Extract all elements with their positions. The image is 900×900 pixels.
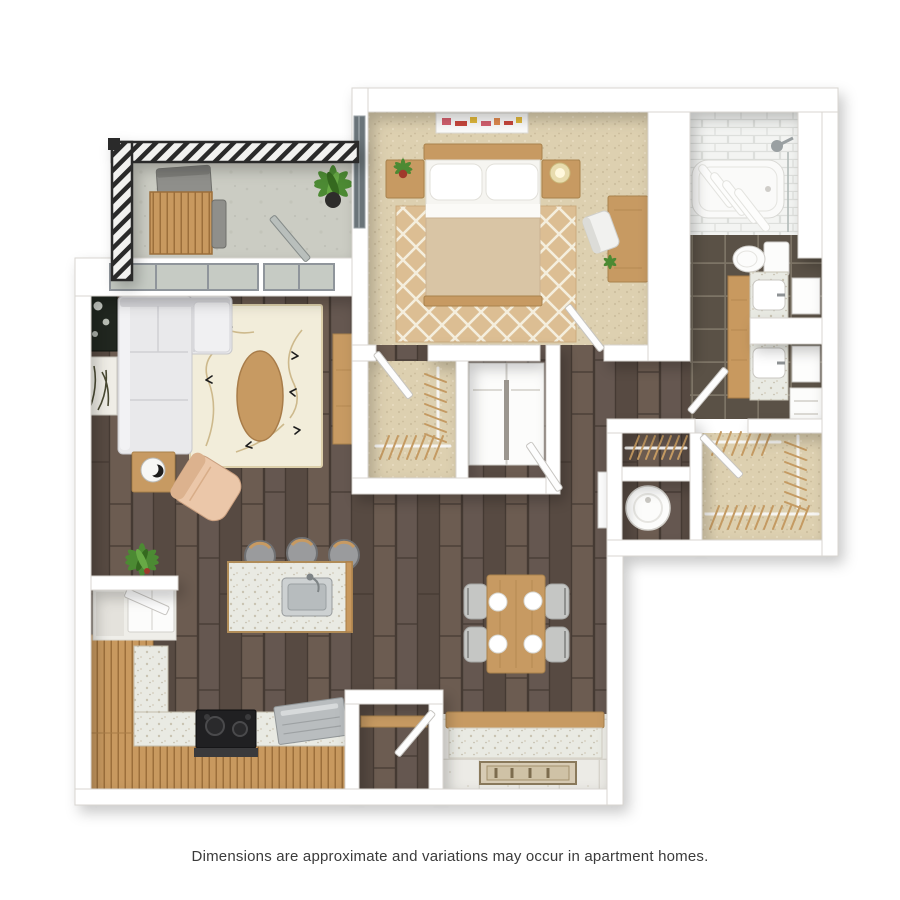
washer: [469, 363, 506, 465]
media-console: [333, 334, 354, 444]
wall-art-abstract: [436, 113, 528, 133]
range-stove: [194, 710, 258, 757]
water-heater: [626, 486, 670, 530]
oval-coffee-table: [237, 351, 283, 441]
blanket: [426, 218, 540, 296]
vestibule-floor: [607, 361, 690, 419]
dryer: [507, 363, 544, 465]
nightstand-left: [386, 158, 424, 198]
bedroom-closet-carpet: [368, 361, 456, 478]
patio-chair: [212, 200, 226, 248]
kitchen-island: [228, 562, 352, 632]
appliance-gap: [504, 380, 509, 460]
pillow: [430, 164, 482, 200]
bed: [424, 144, 542, 306]
pillow: [486, 164, 538, 200]
island-sink: [282, 574, 332, 617]
disclaimer-text: Dimensions are approximate and variation…: [0, 848, 900, 865]
refrigerator-alcove: [93, 588, 176, 640]
footboard: [424, 296, 542, 306]
pony-wall: [449, 728, 602, 758]
mirror: [792, 278, 820, 314]
floor-plan-page: Dimensions are approximate and variation…: [0, 0, 900, 900]
side-table: [132, 452, 175, 492]
headboard: [424, 144, 542, 160]
pony-wall-cap: [446, 712, 604, 728]
doormat: [480, 762, 576, 784]
floor-plan-image: [0, 0, 900, 900]
nightstand-right: [542, 160, 580, 198]
dining-table: [487, 575, 545, 673]
mirror: [792, 346, 820, 382]
